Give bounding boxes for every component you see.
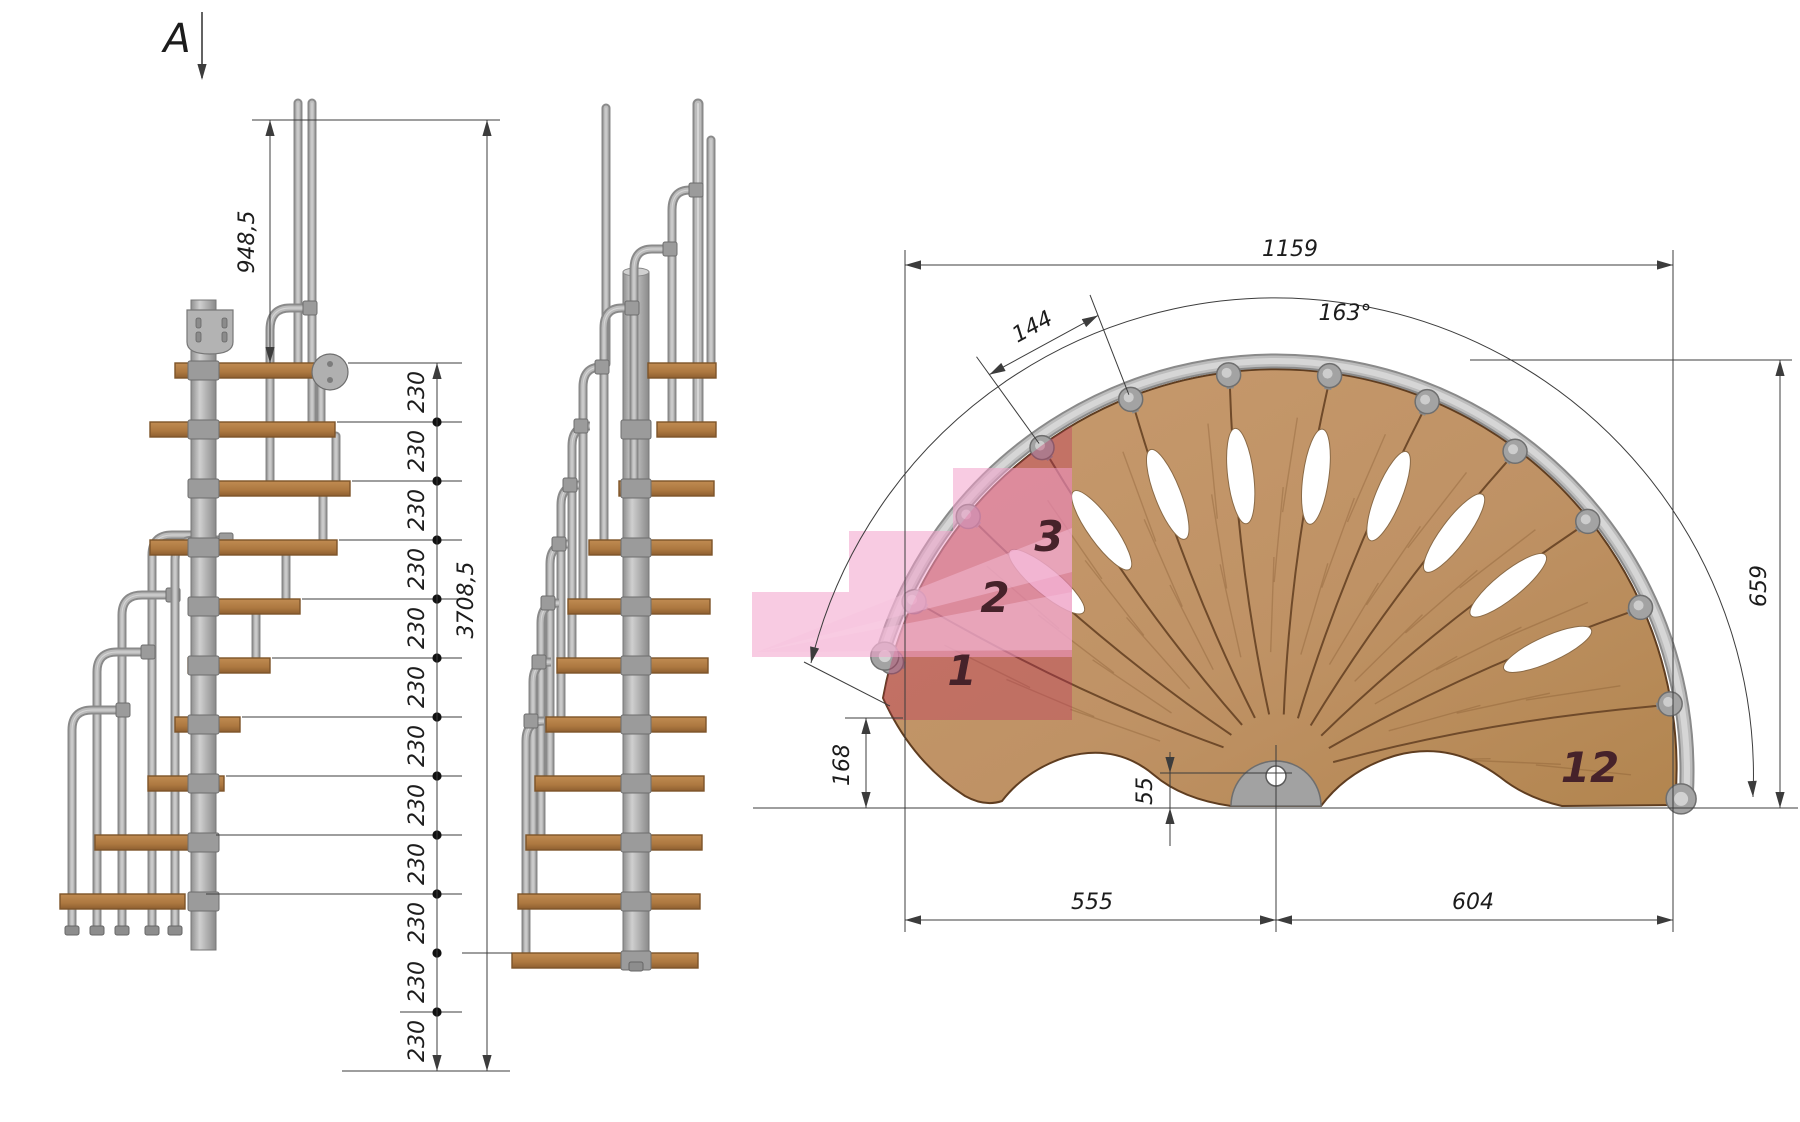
dim-arrow: [1657, 915, 1673, 924]
dim-label-riser-7: 230: [405, 725, 430, 767]
dim-arrow: [1748, 781, 1758, 797]
stair-tread: [526, 835, 702, 850]
stair-tread: [60, 894, 185, 909]
handrail-baluster-body: [270, 308, 310, 481]
dim-arrow: [265, 120, 274, 136]
view-direction-label: A: [160, 16, 190, 62]
dim-label-948: 948,5: [235, 211, 260, 274]
knob-highlight: [1634, 600, 1644, 610]
tube-clamp: [532, 655, 546, 669]
stair-tread: [535, 776, 704, 791]
tube-clamp: [188, 715, 219, 734]
bracket-slot: [222, 318, 227, 328]
dim-arrow: [1276, 915, 1292, 924]
step-number-3: 3: [1034, 512, 1063, 561]
stair-tread: [150, 540, 337, 555]
tube-clamp: [621, 833, 651, 852]
dim-arrow: [861, 792, 870, 808]
tube-clamp: [689, 183, 703, 197]
dim-arrow: [861, 718, 870, 734]
knob-highlight: [1222, 368, 1232, 378]
knob-highlight: [1323, 369, 1333, 379]
tube-clamp: [188, 656, 219, 675]
bracket-slot: [196, 332, 201, 342]
dim-label-604: 604: [1452, 890, 1494, 915]
dim-label-168: 168: [830, 744, 855, 786]
side-view-middle-staircase: [512, 104, 716, 971]
tube-clamp: [621, 715, 651, 734]
tube-clamp: [188, 538, 219, 557]
dim-arrow: [1260, 915, 1276, 924]
dim-label-riser-4: 230: [405, 548, 430, 590]
dim-label-riser-9: 230: [405, 843, 430, 885]
tube-clamp: [621, 538, 651, 557]
dim-arrow: [432, 1055, 441, 1071]
column-foot: [629, 962, 643, 971]
step-number-12: 12: [1561, 743, 1619, 792]
tube-clamp: [188, 420, 219, 439]
baluster-foot: [115, 926, 129, 935]
dim-arrow: [1165, 808, 1174, 824]
baluster-foot: [65, 926, 79, 935]
dim-label-riser-5: 230: [405, 607, 430, 649]
bracket-slot: [222, 332, 227, 342]
tube-clamp: [595, 360, 609, 374]
tube-clamp: [188, 597, 219, 616]
stair-tread: [518, 894, 700, 909]
tube-clamp: [563, 478, 577, 492]
dim-arrow: [1775, 360, 1784, 376]
dim-label-659: 659: [1747, 565, 1772, 607]
dim-label-total: 3708,5: [454, 562, 479, 639]
stair-tread: [648, 363, 716, 378]
dim-arrow: [905, 260, 921, 269]
tube-clamp: [621, 597, 651, 616]
dim-label-riser-12: 230: [405, 1020, 430, 1062]
dim-arrow: [987, 363, 1005, 379]
knob-highlight: [1508, 444, 1518, 454]
dim-label-riser-6: 230: [405, 666, 430, 708]
baluster-foot: [90, 926, 104, 935]
baluster-foot: [168, 926, 182, 935]
step-number-1: 1: [947, 646, 976, 695]
tube-clamp: [541, 596, 555, 610]
dim-arrow: [1775, 792, 1784, 808]
side-view-left-staircase: [60, 103, 350, 950]
baluster-foot: [145, 926, 159, 935]
bracket-slot: [196, 318, 201, 328]
dim-arrow: [482, 120, 491, 136]
dim-label-55: 55: [1133, 777, 1158, 805]
step-number-2: 2: [980, 573, 1009, 622]
tube-clamp: [188, 892, 219, 911]
dim-label-riser-1: 230: [405, 371, 430, 413]
dim-label-riser-10: 230: [405, 902, 430, 944]
drawing-canvas: A948,52302302302302302302302302302302302…: [0, 0, 1800, 1122]
tube-clamp: [188, 361, 219, 380]
staircase-technical-drawing: A948,52302302302302302302302302302302302…: [0, 0, 1800, 1122]
extension-line-144: [1090, 295, 1129, 395]
tube-clamp: [621, 892, 651, 911]
handrail-baluster-highlight: [270, 308, 310, 481]
tube-clamp: [621, 420, 651, 439]
tube-clamp: [303, 301, 317, 315]
tube-clamp: [141, 645, 155, 659]
dim-label-163deg: 163°: [1319, 301, 1372, 326]
tube-clamp: [524, 714, 538, 728]
dim-label-riser-2: 230: [405, 430, 430, 472]
flange-bolt: [327, 361, 333, 367]
flange-bolt: [327, 377, 333, 383]
extension-line-144: [977, 357, 1040, 444]
rail-end-cap-center: [1674, 792, 1688, 806]
tube-clamp: [188, 479, 219, 498]
tube-clamp: [188, 774, 219, 793]
tube-clamp: [188, 833, 219, 852]
dim-arrow: [905, 915, 921, 924]
tube-clamp: [621, 479, 651, 498]
mount-flange: [312, 354, 348, 390]
tube-clamp: [116, 703, 130, 717]
dim-label-riser-3: 230: [405, 489, 430, 531]
dim-label-riser-8: 230: [405, 784, 430, 826]
knob-highlight: [1420, 395, 1430, 405]
dim-arrow: [1657, 260, 1673, 269]
tube-clamp: [552, 537, 566, 551]
dim-label-riser-11: 230: [405, 961, 430, 1003]
dim-arrow: [197, 64, 206, 80]
dim-label-1159: 1159: [1262, 237, 1318, 262]
tube-clamp: [574, 419, 588, 433]
knob-highlight: [1663, 697, 1673, 707]
stair-tread: [150, 422, 335, 437]
tube-clamp: [621, 774, 651, 793]
dim-label-555: 555: [1071, 890, 1113, 915]
knob-highlight: [1581, 514, 1591, 524]
stair-tread: [512, 953, 698, 968]
tube-clamp: [621, 656, 651, 675]
tube-clamp: [625, 301, 639, 315]
tube-clamp: [663, 242, 677, 256]
dim-arrow: [482, 1055, 491, 1071]
dim-arrow: [432, 363, 441, 379]
handrail-baluster: [270, 308, 310, 481]
stair-tread: [657, 422, 716, 437]
